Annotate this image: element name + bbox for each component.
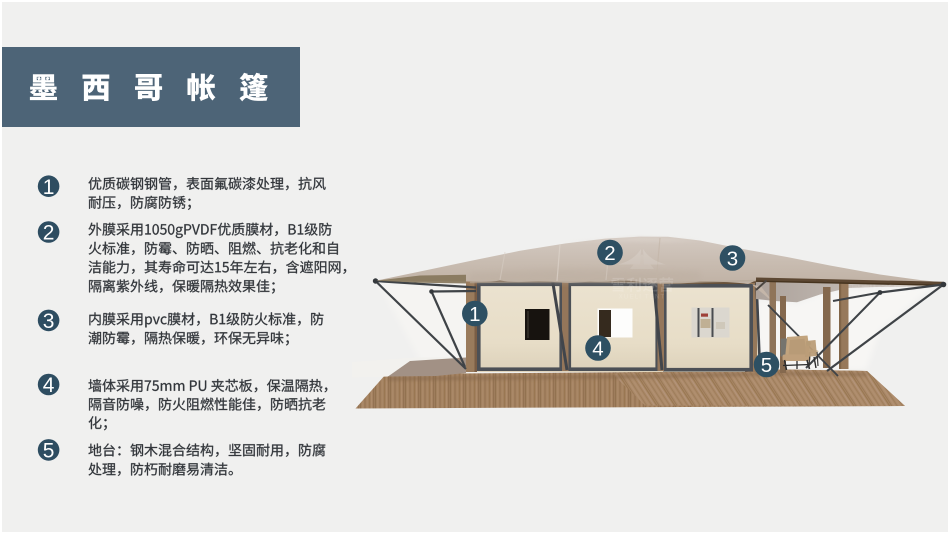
svg-text:5: 5 [761, 354, 772, 377]
svg-text:2: 2 [604, 242, 615, 265]
svg-text:5: 5 [43, 440, 55, 463]
svg-text:4: 4 [43, 374, 55, 397]
svg-text:1: 1 [43, 176, 55, 199]
svg-text:XUELI TENT: XUELI TENT [619, 294, 666, 301]
svg-text:3: 3 [43, 310, 55, 333]
svg-text:3: 3 [727, 248, 738, 271]
svg-text:1: 1 [469, 303, 480, 326]
svg-text:4: 4 [592, 338, 603, 361]
svg-text:2: 2 [43, 222, 55, 245]
